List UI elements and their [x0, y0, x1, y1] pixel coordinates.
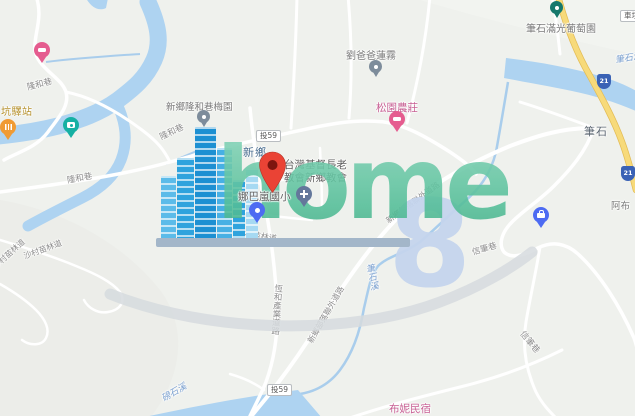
- school-pin[interactable]: [249, 202, 265, 218]
- dot-icon: [255, 208, 260, 213]
- map-canvas[interactable]: 坑驛站 隆和巷 隆和巷 隆和巷 新鄉隆和巷梅園 劉爸爸蓮霧 松園農莊 筆石滿光葡…: [0, 0, 635, 416]
- dot-icon: [555, 6, 559, 10]
- fork-knife-icon: [5, 124, 12, 130]
- red-marker-icon: [258, 151, 287, 194]
- church-pin[interactable]: [296, 186, 312, 202]
- cross-icon: [300, 190, 308, 198]
- destination-marker[interactable]: [258, 151, 287, 198]
- vineyard-pin[interactable]: [550, 1, 563, 14]
- route-badge-tou59-south: 投59: [267, 384, 292, 396]
- highway-21-shield-south: 21: [621, 166, 635, 181]
- photo-spot-pin[interactable]: [63, 117, 79, 133]
- work-pin[interactable]: [533, 207, 549, 223]
- meiyuan-pin[interactable]: [197, 110, 210, 123]
- bed-icon: [393, 117, 401, 121]
- highway-21-shield-north: 21: [597, 74, 611, 89]
- restaurant-pin-station[interactable]: [0, 119, 16, 135]
- dot-icon: [374, 65, 378, 69]
- route-badge-tou59-north: 投59: [256, 130, 281, 142]
- liu-baba-pin[interactable]: [369, 60, 382, 73]
- pin-layer: 新鄉 筆石 娜巴嵐國小 投59 投59 車埕 21 21: [0, 0, 635, 416]
- route-badge-edge-clipped: 車埕: [620, 10, 635, 22]
- bed-icon: [38, 48, 46, 52]
- town-label-bishi[interactable]: 筆石: [584, 123, 608, 139]
- briefcase-icon: [537, 213, 545, 218]
- camera-icon: [67, 122, 75, 128]
- lodging-pin-northwest[interactable]: [34, 42, 50, 58]
- songyuan-farm-pin[interactable]: [389, 111, 405, 127]
- dot-icon: [202, 115, 206, 119]
